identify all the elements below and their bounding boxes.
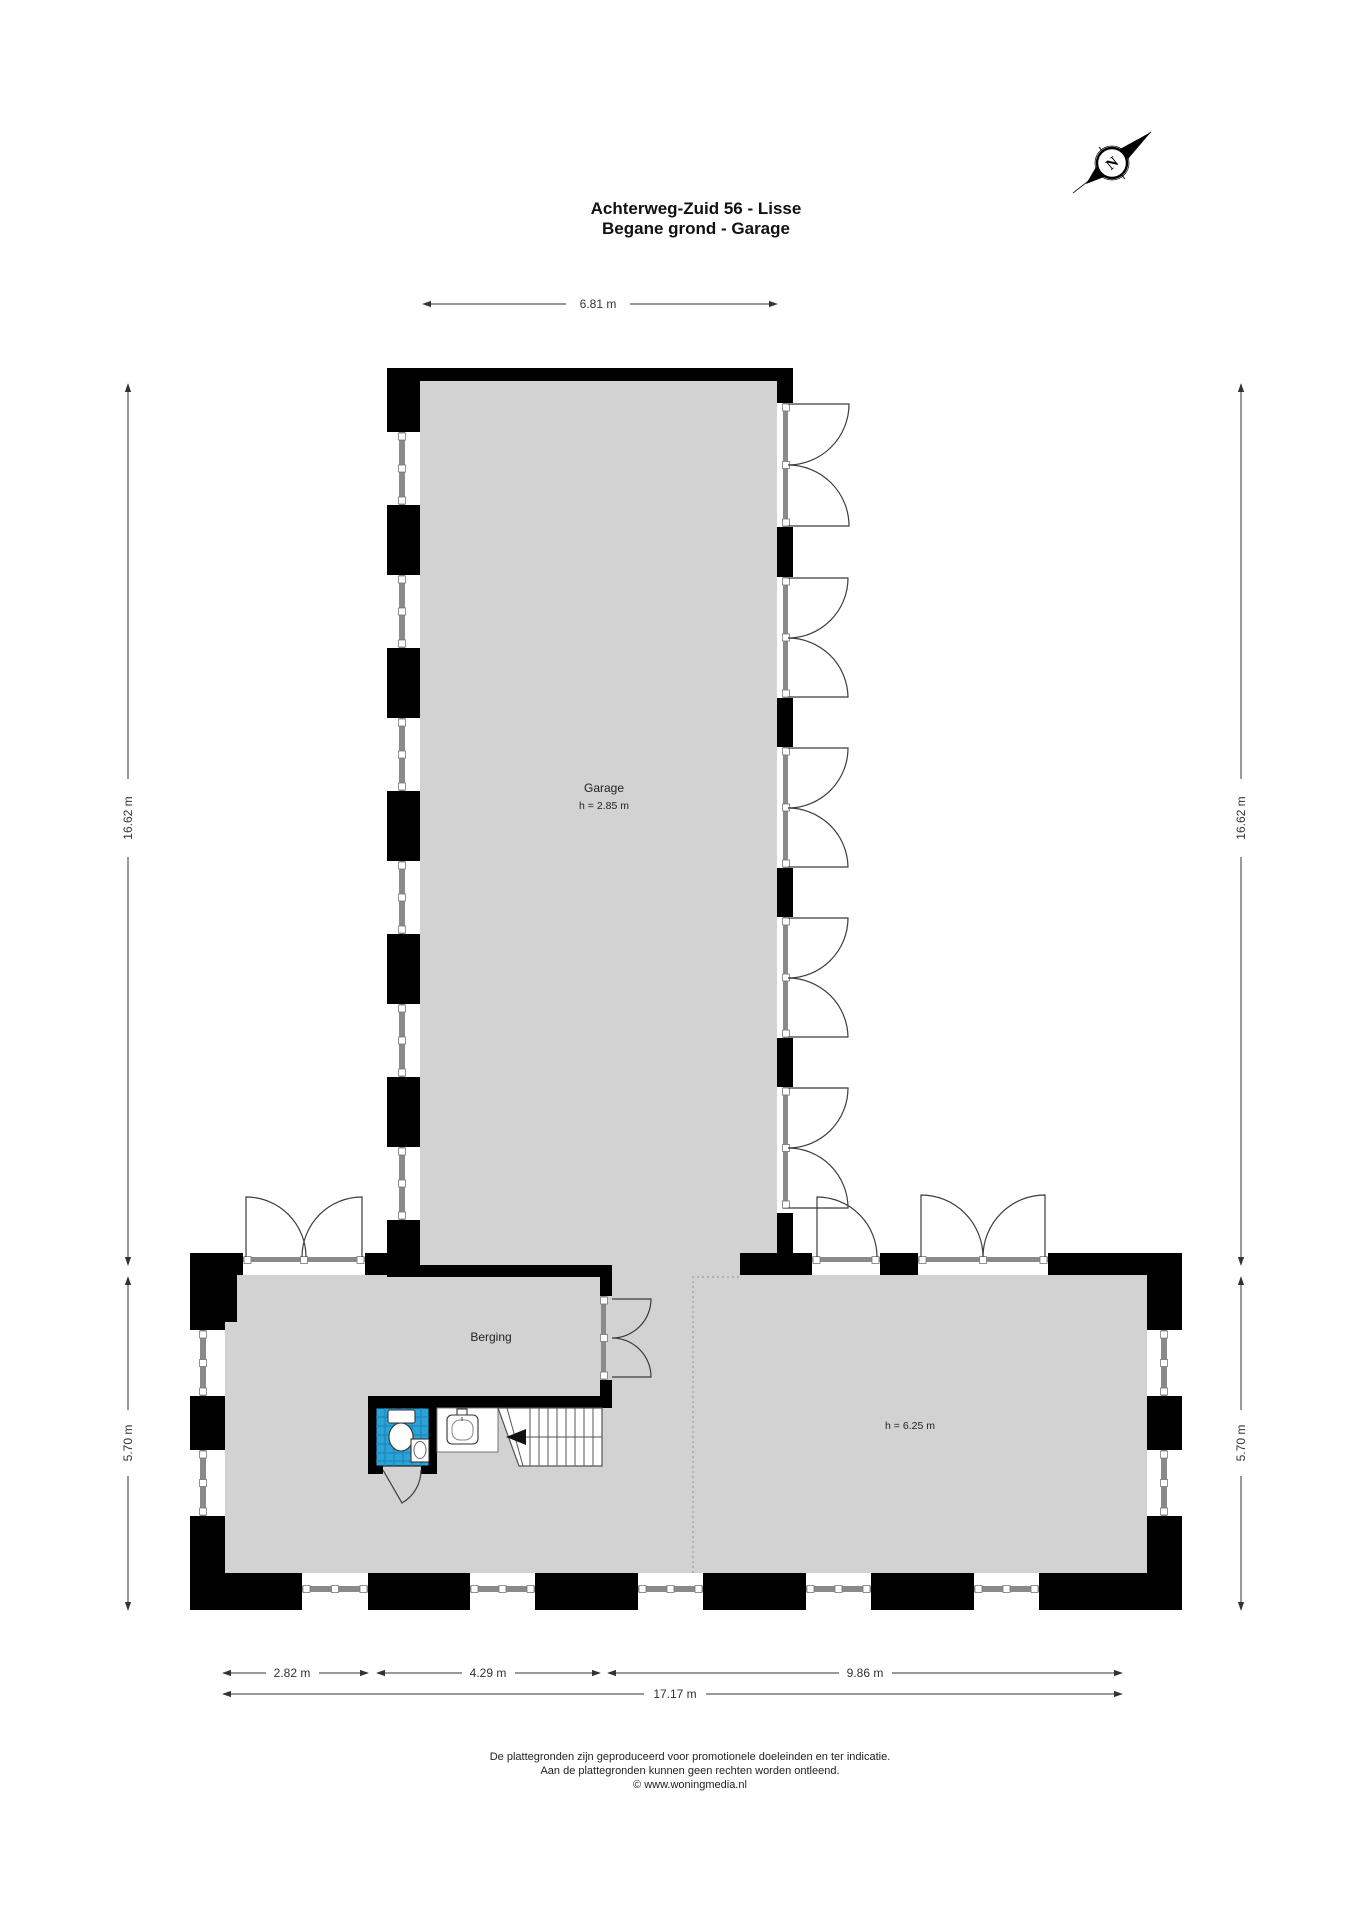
garage-height-label: h = 2.85 m — [579, 800, 629, 812]
plan-title: Achterweg-Zuid 56 - Lisse Begane grond -… — [591, 199, 802, 238]
footer-line2: Aan de plattegronden kunnen geen rechten… — [540, 1765, 839, 1777]
window — [974, 1586, 1039, 1593]
garage-door — [783, 747, 849, 868]
garage-door — [783, 577, 849, 698]
window — [200, 1450, 207, 1516]
double-door — [918, 1195, 1048, 1264]
bathroom — [376, 1408, 429, 1466]
window — [806, 1586, 871, 1593]
main-space-height-label: h = 6.25 m — [885, 1420, 935, 1432]
floorplan-page: Achterweg-Zuid 56 - Lisse Begane grond -… — [0, 0, 1358, 1920]
toilet-cistern — [388, 1410, 415, 1423]
window — [302, 1586, 368, 1593]
footer-copyright: © www.woningmedia.nl — [633, 1779, 747, 1791]
dim-top-width: 6.81 m — [580, 297, 617, 311]
window — [1161, 1330, 1168, 1396]
garage-door — [783, 403, 850, 527]
dim-right-lower: 5.70 m — [1234, 1425, 1248, 1462]
toilet-bowl — [389, 1423, 413, 1451]
garage-floor — [420, 380, 777, 1253]
floor-areas — [225, 380, 1147, 1573]
dim-bottom-seg2: 4.29 m — [470, 1666, 507, 1680]
dim-bottom-seg1: 2.82 m — [274, 1666, 311, 1680]
window — [399, 861, 406, 934]
window — [1161, 1450, 1168, 1516]
compass-north-icon: N — [1073, 132, 1151, 193]
garage-door — [783, 917, 849, 1038]
window — [399, 575, 406, 648]
window — [200, 1330, 207, 1396]
footer-line1: De plattegronden zijn geproduceerd voor … — [490, 1751, 891, 1763]
window — [399, 718, 406, 791]
dim-right-upper: 16.62 m — [1234, 796, 1248, 839]
garage-door — [783, 1087, 849, 1209]
window — [470, 1586, 535, 1593]
title-line2: Begane grond - Garage — [602, 219, 790, 238]
garage-label: Garage — [584, 781, 624, 795]
title-line1: Achterweg-Zuid 56 - Lisse — [591, 199, 802, 218]
window — [399, 1147, 406, 1220]
window — [638, 1586, 703, 1593]
single-door — [812, 1197, 880, 1264]
dim-left-upper: 16.62 m — [121, 796, 135, 839]
washbasin-nook — [437, 1408, 498, 1452]
dim-bottom-total: 17.17 m — [653, 1687, 696, 1701]
dim-left-lower: 5.70 m — [121, 1425, 135, 1462]
berging-label: Berging — [470, 1330, 511, 1344]
floorplan-drawing: Achterweg-Zuid 56 - Lisse Begane grond -… — [0, 0, 1358, 1920]
footer-disclaimer: De plattegronden zijn geproduceerd voor … — [490, 1751, 891, 1791]
window — [399, 432, 406, 505]
lower-section-floor — [225, 1275, 1147, 1573]
window — [399, 1004, 406, 1077]
dim-bottom-seg3: 9.86 m — [847, 1666, 884, 1680]
double-door — [243, 1197, 365, 1264]
